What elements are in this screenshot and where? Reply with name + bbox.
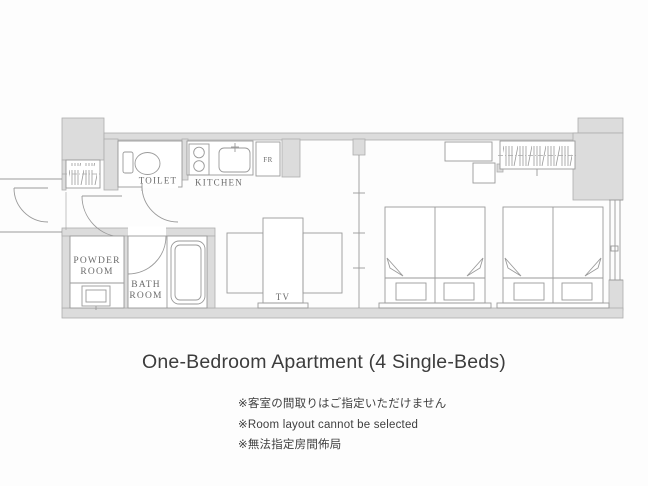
bath-room: BATH ROOM — [128, 236, 207, 308]
bed-pair-2 — [497, 207, 609, 308]
toilet-label: TOILET — [139, 176, 178, 186]
powder-room: POWDER ROOM — [70, 236, 124, 310]
kitchen: FR KITCHEN — [187, 141, 280, 188]
floorplan-drawing: TOILET FR KITCHEN — [0, 0, 648, 340]
tv-unit: TV — [227, 218, 342, 308]
window — [609, 200, 623, 280]
note-chinese: ※無法指定房間佈局 — [238, 435, 446, 456]
toilet-room: TOILET — [118, 141, 182, 222]
bed-pair-1 — [379, 207, 491, 308]
window-handle-icon — [611, 246, 618, 251]
desk — [445, 142, 495, 183]
plan-notes: ※客室の間取りはご指定いただけません ※Room layout cannot b… — [238, 394, 446, 456]
fridge-label: FR — [263, 156, 273, 164]
sliding-partition — [353, 155, 365, 308]
pipe-shaft — [62, 160, 102, 188]
corridor-lines — [0, 179, 62, 232]
floorplan-page: TOILET FR KITCHEN — [0, 0, 648, 486]
entrance-door — [14, 188, 66, 230]
powder-room-label-1: POWDER — [73, 256, 120, 266]
note-english: ※Room layout cannot be selected — [238, 415, 446, 436]
note-japanese: ※客室の間取りはご指定いただけません — [238, 394, 446, 415]
plan-title: One-Bedroom Apartment (4 Single-Beds) — [0, 351, 648, 374]
tv-label: TV — [276, 292, 290, 302]
bath-room-label-2: ROOM — [129, 291, 162, 301]
fridge: FR — [256, 142, 280, 176]
kitchen-label: KITCHEN — [195, 178, 243, 188]
bath-room-label-1: BATH — [131, 280, 161, 290]
closet — [498, 141, 578, 176]
powder-room-label-2: ROOM — [80, 267, 113, 277]
